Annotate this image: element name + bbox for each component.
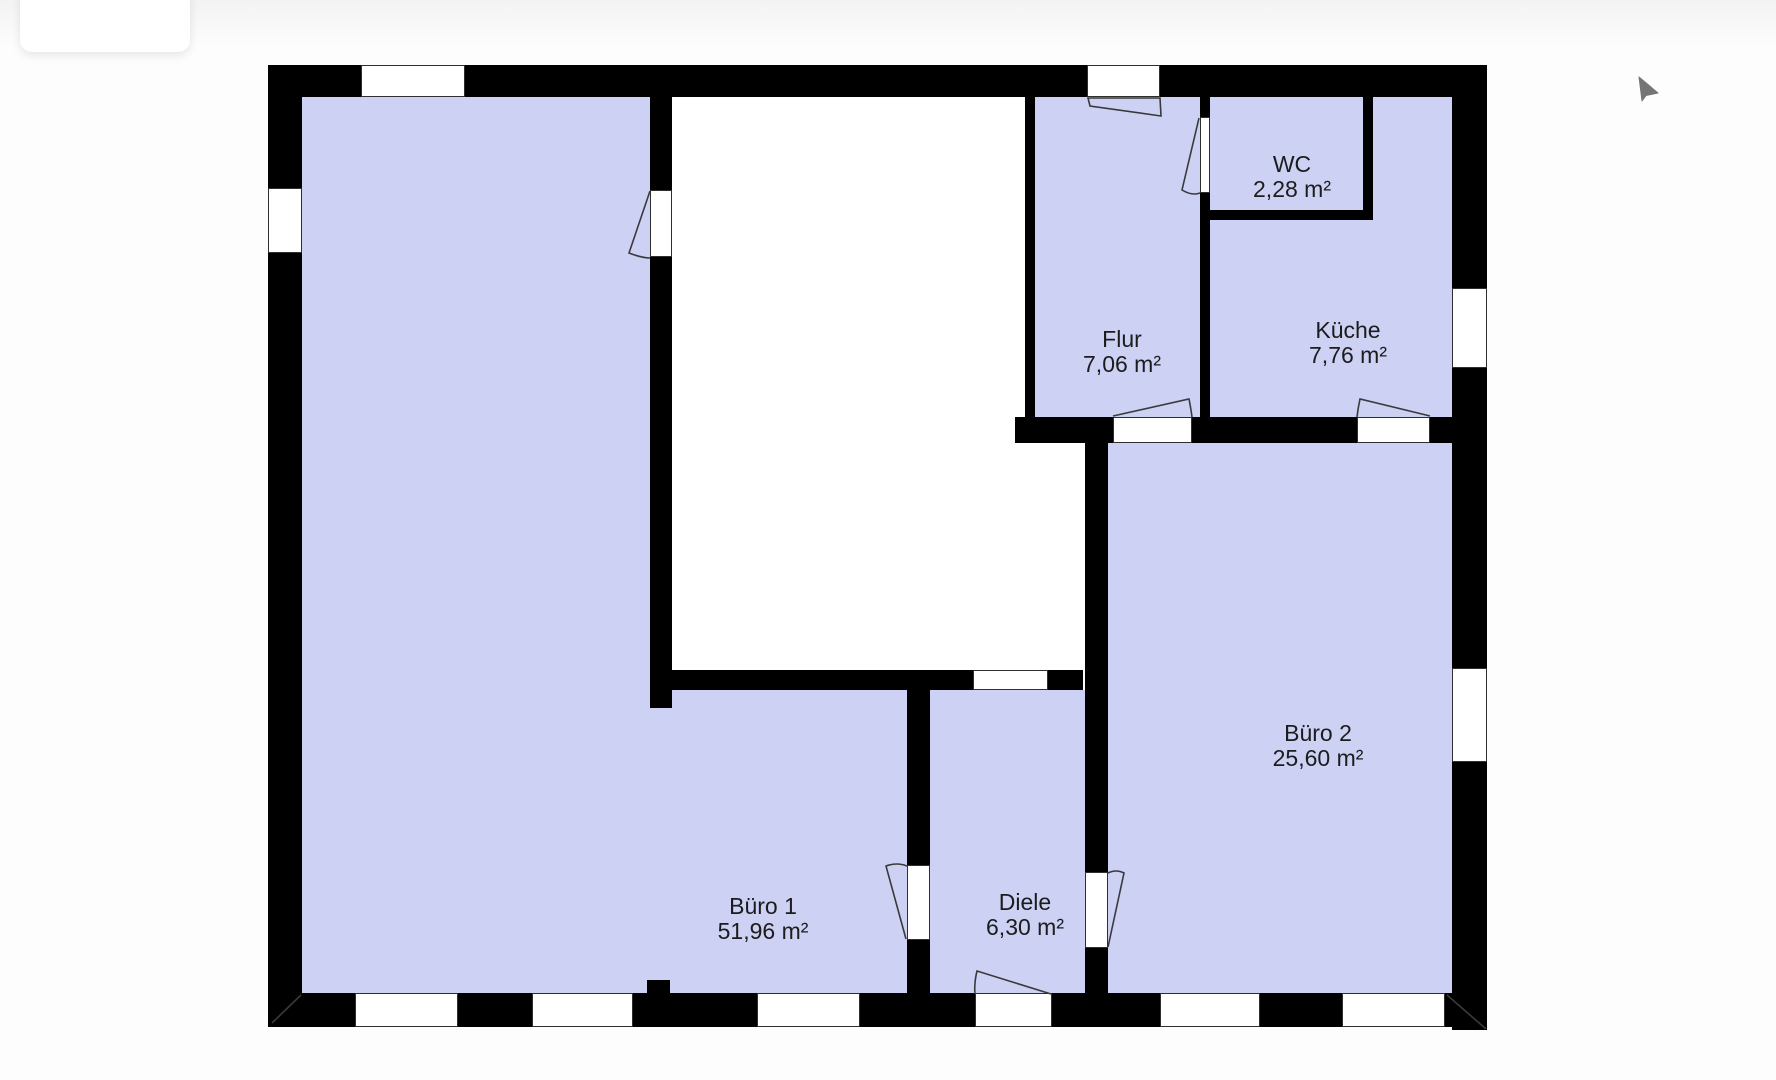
door-opening-buero1-diele (907, 865, 930, 940)
window-right-kueche (1452, 288, 1487, 368)
door-opening-buero1-courtyard (650, 190, 672, 257)
door-opening-wc (1200, 117, 1210, 193)
room-buero2-fill (1108, 443, 1452, 993)
room-area: 25,60 m² (1273, 746, 1364, 771)
room-label-buero2: Büro 2 25,60 m² (1273, 721, 1364, 771)
window-bottom-2 (532, 993, 633, 1027)
window-bottom-1 (355, 993, 458, 1027)
room-name: WC (1253, 152, 1331, 177)
door-opening-flur-buero2 (1113, 417, 1192, 443)
window-bottom-3 (757, 993, 860, 1027)
room-diele-fill (930, 690, 1085, 993)
wall-flur-left (1025, 97, 1035, 443)
door-opening-diele-entrance (975, 993, 1052, 1027)
door-opening-kueche-buero2 (1357, 417, 1430, 443)
room-label-flur: Flur 7,06 m² (1083, 327, 1161, 377)
window-top (361, 65, 465, 97)
room-area: 51,96 m² (718, 919, 809, 944)
room-area: 7,76 m² (1309, 343, 1387, 368)
window-left (268, 188, 302, 253)
door-opening-diele-buero2 (1085, 872, 1108, 948)
room-name: Flur (1083, 327, 1161, 352)
room-name: Diele (986, 890, 1064, 915)
window-right-buero2 (1452, 668, 1487, 762)
room-buero1-fill-bottom (650, 690, 907, 993)
room-area: 2,28 m² (1253, 177, 1331, 202)
room-label-kueche: Küche 7,76 m² (1309, 318, 1387, 368)
top-strip (0, 0, 1776, 46)
window-courtyard-diele (973, 670, 1048, 690)
room-name: Büro 1 (718, 894, 809, 919)
courtyard-area (672, 97, 1025, 670)
wall-wc-right (1363, 97, 1373, 220)
room-name: Küche (1309, 318, 1387, 343)
wall-wc-bottom (1210, 210, 1373, 220)
room-label-wc: WC 2,28 m² (1253, 152, 1331, 202)
room-name: Büro 2 (1273, 721, 1364, 746)
room-kueche-fill-top (1373, 97, 1452, 220)
room-label-buero1: Büro 1 51,96 m² (718, 894, 809, 944)
floorplan-canvas: Büro 1 51,96 m² Diele 6,30 m² Büro 2 25,… (0, 0, 1776, 1080)
wall-outer-right (1452, 65, 1487, 1030)
wall-buero1-diele (907, 690, 930, 993)
wall-buero1-nib (647, 980, 670, 993)
room-buero1-fill-top (302, 97, 650, 993)
window-bottom-5 (1342, 993, 1445, 1027)
toolbar-card (20, 0, 190, 52)
wall-buero1-courtyard (650, 97, 672, 708)
window-bottom-4 (1160, 993, 1260, 1027)
room-area: 7,06 m² (1083, 352, 1161, 377)
room-label-diele: Diele 6,30 m² (986, 890, 1064, 940)
courtyard-area-right (1025, 443, 1085, 670)
door-opening-entrance-top (1087, 65, 1160, 97)
room-area: 6,30 m² (986, 915, 1064, 940)
mouse-cursor-icon (1639, 77, 1658, 101)
